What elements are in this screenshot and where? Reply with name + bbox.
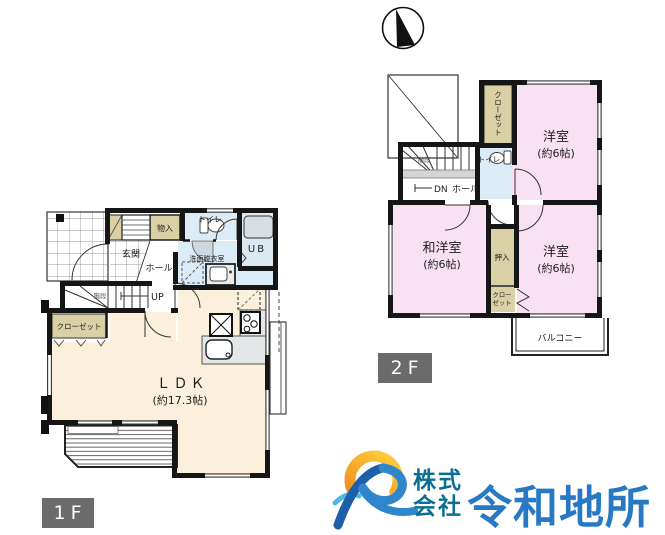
label-balcony: バルコニー <box>538 333 583 344</box>
floorplan-canvas: 物入 玄関 ホール トイレ UB 洗面脱衣室 階段 UP クローゼット ＬＤＫ … <box>0 0 665 535</box>
floor2-plan: クローゼット 階段 DN ホール トイレ 洋室 (約6帖) 和洋室 (約6帖) … <box>388 75 608 355</box>
floorplan-drawing: 物入 玄関 ホール トイレ UB 洗面脱衣室 階段 UP クローゼット ＬＤＫ … <box>0 0 665 535</box>
stove <box>241 312 260 333</box>
porch-tiles <box>47 212 108 281</box>
label-ldk: ＬＤＫ <box>157 376 208 392</box>
stairs-1f <box>65 286 148 308</box>
company-logo-icon <box>335 456 414 525</box>
label-yoshitsu-btm: 洋室 <box>543 244 569 260</box>
floor1-tag: 1F <box>42 498 94 528</box>
label-hall-1f: ホール <box>145 263 172 274</box>
label-genkan: 玄関 <box>122 248 140 260</box>
label-senmen: 洗面脱衣室 <box>190 254 225 263</box>
floor-hatch <box>210 314 232 336</box>
label-wayoshitsu-size: (約6帖) <box>423 257 461 271</box>
label-closet-1f: クローゼット <box>57 321 102 331</box>
kitchen-sink <box>206 340 232 359</box>
company-type-line2: 会社 <box>413 494 463 520</box>
pillar-mark <box>41 396 48 414</box>
pillar-mark <box>41 300 49 313</box>
washstand <box>206 264 235 285</box>
label-oshiire: 押入 <box>495 252 510 262</box>
floor1-plan: 物入 玄関 ホール トイレ UB 洗面脱衣室 階段 UP クローゼット ＬＤＫ … <box>41 208 286 478</box>
label-toilet-2f: トイレ <box>478 155 501 164</box>
porch-post <box>56 214 64 222</box>
company-type-text: 株式 会社 <box>413 468 463 520</box>
wood-deck <box>65 425 177 467</box>
label-kaidan-2f: 階段 <box>418 155 431 164</box>
label-closet-small-2: ゼット <box>493 298 512 307</box>
pillar-mark <box>41 420 49 434</box>
company-name-text: 令和地所 <box>467 471 651 535</box>
label-toilet-1f: トイレ <box>198 215 222 224</box>
label-closet-small-1: クロー <box>493 291 512 299</box>
shoe-cabinet <box>122 215 150 240</box>
label-yoshitsu-btm-size: (約6帖) <box>537 261 575 275</box>
label-dn: DN <box>434 185 448 195</box>
label-yoshitsu-top-size: (約6帖) <box>537 146 575 160</box>
label-hall-2f: ホール <box>452 184 479 195</box>
compass-icon <box>383 8 424 49</box>
bay-window <box>270 292 286 414</box>
label-monoire: 物入 <box>157 223 173 233</box>
label-kaidan-1f: 階段 <box>94 291 108 300</box>
label-up: UP <box>151 292 164 303</box>
label-ldk-size: (約17.3帖) <box>152 393 207 407</box>
floor2-tag: 2F <box>378 353 432 383</box>
bathtub <box>244 216 273 238</box>
label-yoshitsu-top: 洋室 <box>543 129 569 145</box>
label-ub: UB <box>248 244 266 255</box>
company-type-line1: 株式 <box>413 468 463 494</box>
label-wayoshitsu: 和洋室 <box>422 240 461 256</box>
label-closet-top: クローゼット <box>493 91 502 136</box>
